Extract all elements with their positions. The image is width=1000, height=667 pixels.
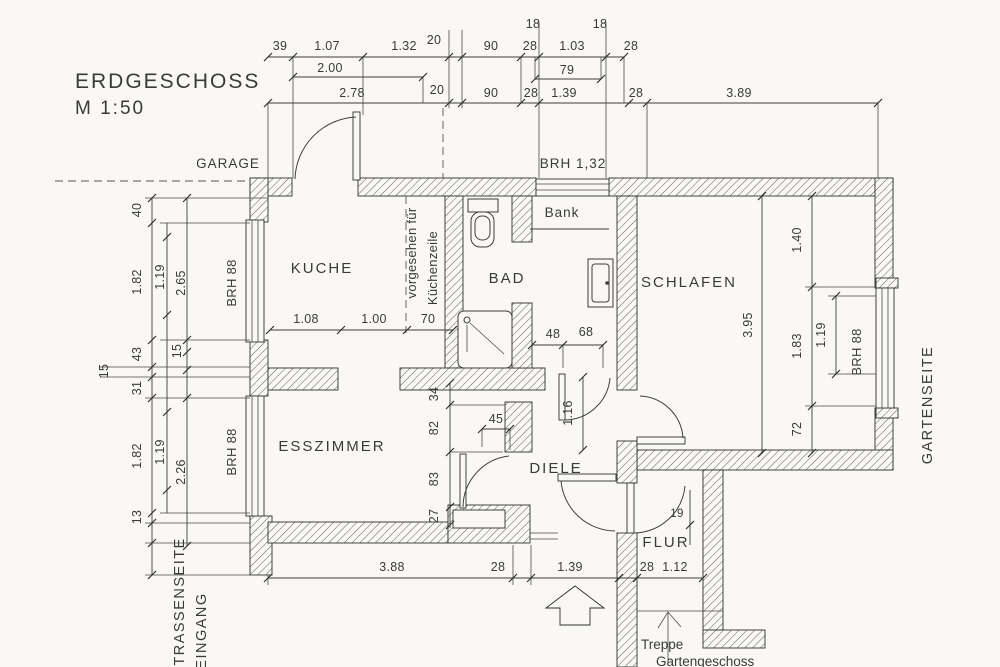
dim-top: 90 — [484, 39, 499, 53]
floor-plan-drawing: ERDGESCHOSS M 1:50 GARAGE GARTENSEITE ST… — [0, 0, 1000, 667]
dim-top: 3.89 — [726, 86, 752, 100]
dim-top: 20 — [427, 33, 442, 47]
kitchen-note: Küchenzeile — [425, 231, 440, 305]
kitchen-note: vorgesehen für — [404, 207, 419, 298]
dim-bedroom: 1.40 — [790, 227, 804, 253]
dim-left: 1.82 — [130, 443, 144, 469]
dim-kitchen: 70 — [421, 312, 436, 326]
dim-bath: 48 — [546, 327, 561, 341]
plan-scale: M 1:50 — [75, 98, 145, 119]
dim-top: 79 — [560, 63, 575, 77]
dim-top: 90 — [484, 86, 499, 100]
bedroom-window — [876, 288, 894, 408]
brh-label: BRH 1,32 — [540, 156, 607, 171]
room-bath: BAD — [489, 270, 526, 287]
dim-bedroom: 1.83 — [790, 333, 804, 359]
dim-bedroom: 72 — [790, 422, 804, 437]
entrance-label: EINGANG — [194, 592, 210, 667]
dim-left: 43 — [130, 347, 144, 362]
dim-bottom: 28 — [640, 560, 655, 574]
dim-top: 28 — [523, 39, 538, 53]
entrance-door — [530, 474, 616, 539]
dim-bath: 68 — [579, 325, 594, 339]
dim-left: 2.26 — [174, 459, 188, 485]
room-hall: DIELE — [529, 460, 582, 477]
dim-dining: 27 — [427, 509, 441, 524]
dim-kitchen: 1.08 — [293, 312, 319, 326]
dim-top: 39 — [273, 39, 288, 53]
dim-bottom: 1.12 — [662, 560, 688, 574]
dim-bottom: 28 — [491, 560, 506, 574]
room-corridor: FLUR — [642, 534, 689, 551]
dim-left: 15 — [97, 364, 111, 379]
street-side-label: STRASSENSEITE — [172, 537, 188, 667]
room-kitchen: KUCHE — [291, 260, 354, 277]
brh-label: BRH 88 — [224, 259, 239, 306]
dim-top: 18 — [526, 17, 541, 31]
room-bedroom: SCHLAFEN — [641, 274, 737, 291]
dim-left: 15 — [170, 344, 184, 359]
brh-label: BRH 88 — [849, 328, 864, 375]
stairs-label: Gartengeschoss — [656, 654, 755, 667]
dim-kitchen: 1.00 — [361, 312, 387, 326]
dim-bedroom: 1.19 — [814, 322, 828, 348]
dim-top: 2.78 — [339, 86, 365, 100]
dim-left: 31 — [130, 381, 144, 396]
dim-left: 2.65 — [174, 270, 188, 296]
dining-door — [460, 454, 509, 508]
shower — [458, 311, 512, 368]
toilet — [468, 199, 498, 247]
fixtures — [458, 199, 723, 662]
dim-niche: 45 — [489, 412, 504, 426]
dim-left: 1.19 — [153, 264, 167, 290]
scanned-floor-plan: ERDGESCHOSS M 1:50 GARAGE GARTENSEITE ST… — [0, 0, 1000, 667]
bath-window — [536, 179, 609, 196]
dim-top: 1.03 — [559, 39, 585, 53]
dim-top: 2.00 — [317, 61, 343, 75]
dim-dining: 34 — [427, 387, 441, 402]
dim-top: 1.39 — [551, 86, 577, 100]
dim-left: 40 — [130, 203, 144, 218]
dim-dining: 82 — [427, 421, 441, 436]
brh-label: BRH 88 — [224, 428, 239, 475]
garage-label: GARAGE — [196, 156, 260, 171]
bench-label: Bank — [545, 205, 580, 220]
entrance-arrow — [546, 586, 604, 625]
dim-hall-depth: 1.16 — [561, 400, 575, 426]
dim-top: 20 — [430, 83, 445, 97]
dim-left: 13 — [130, 510, 144, 525]
dim-left: 1.19 — [153, 439, 167, 465]
dim-top: 18 — [593, 17, 608, 31]
garage-door — [295, 112, 360, 180]
entry-niche — [453, 510, 505, 528]
room-dining: ESSZIMMER — [278, 438, 385, 455]
dim-dining: 83 — [427, 472, 441, 487]
plan-title: ERDGESCHOSS — [75, 70, 260, 93]
dim-bedroom: 3.95 — [741, 312, 755, 338]
dim-bottom: 3.88 — [379, 560, 405, 574]
stairs-label: Treppe — [641, 637, 683, 652]
garden-side-label: GARTENSEITE — [920, 346, 936, 465]
dim-door: 19 — [670, 508, 683, 520]
dim-top: 28 — [524, 86, 539, 100]
dim-top: 1.32 — [391, 39, 417, 53]
dim-left: 1.82 — [130, 269, 144, 295]
bedroom-door — [637, 396, 685, 444]
washbasin — [588, 259, 613, 307]
dim-top: 28 — [629, 86, 644, 100]
dim-bottom: 1.39 — [557, 560, 583, 574]
dim-top: 1.07 — [314, 39, 340, 53]
dining-window — [246, 396, 264, 516]
kitchen-window — [246, 220, 264, 342]
dim-top: 28 — [624, 39, 639, 53]
dimension-lines — [100, 22, 878, 585]
